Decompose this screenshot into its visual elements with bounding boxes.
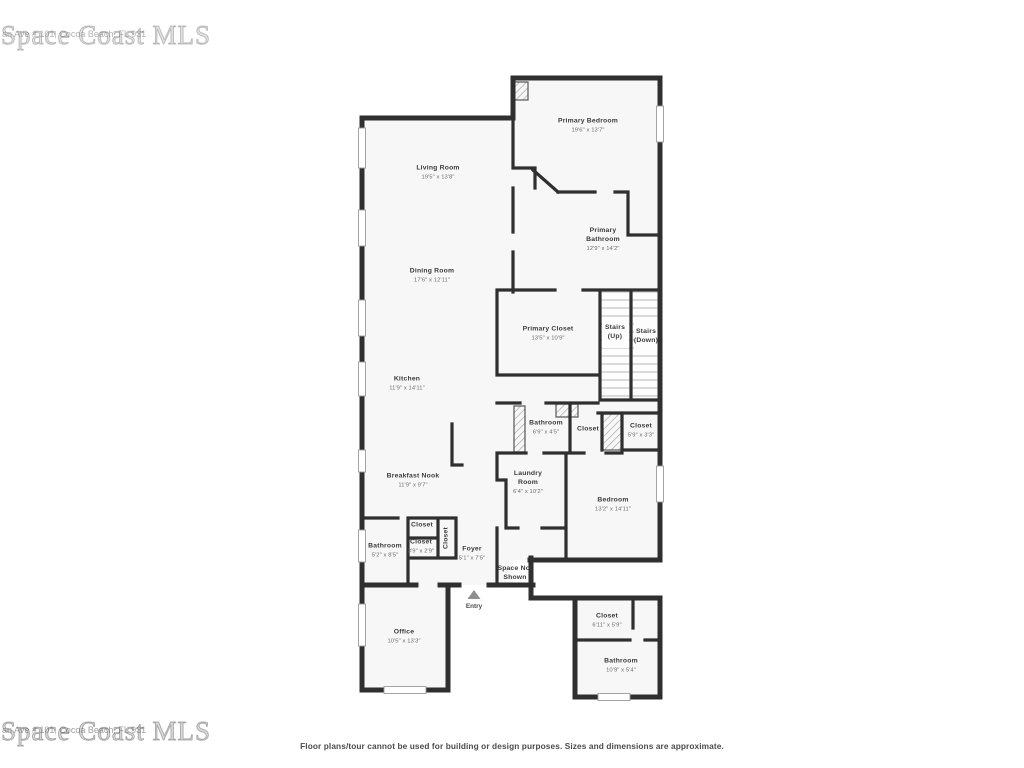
floor-plan-page: Primary Bedroom19'6" x 13'7" Living Room… [0, 0, 1024, 768]
entry-arrow-icon [468, 590, 481, 599]
disclaimer-text: Floor plans/tour cannot be used for buil… [0, 741, 1024, 751]
floor-plan-drawing [0, 0, 1024, 768]
